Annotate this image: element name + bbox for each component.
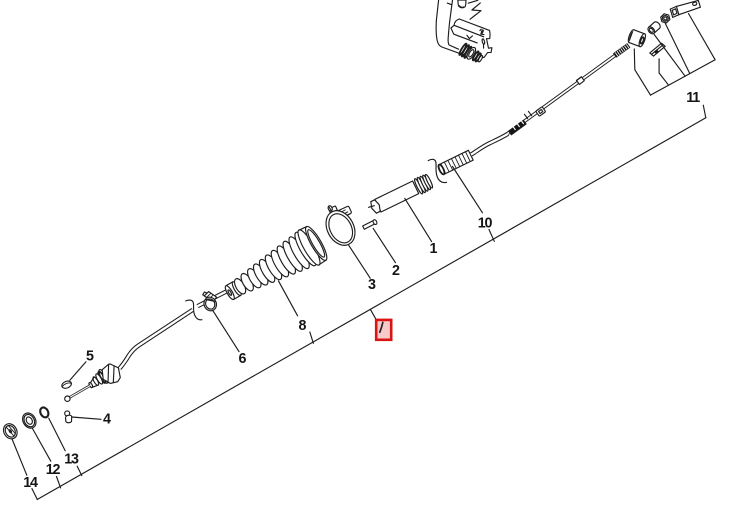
svg-text:13: 13 (64, 451, 79, 467)
svg-text:2: 2 (392, 263, 400, 279)
svg-text:3: 3 (368, 277, 376, 293)
svg-text:6: 6 (239, 351, 247, 367)
svg-text:1: 1 (430, 241, 438, 257)
svg-text:5: 5 (86, 348, 94, 364)
svg-text:10: 10 (478, 215, 493, 231)
svg-text:4: 4 (103, 412, 111, 428)
svg-text:11: 11 (686, 90, 700, 106)
svg-text:8: 8 (299, 318, 307, 334)
svg-text:12: 12 (46, 462, 61, 478)
svg-text:14: 14 (23, 475, 38, 491)
